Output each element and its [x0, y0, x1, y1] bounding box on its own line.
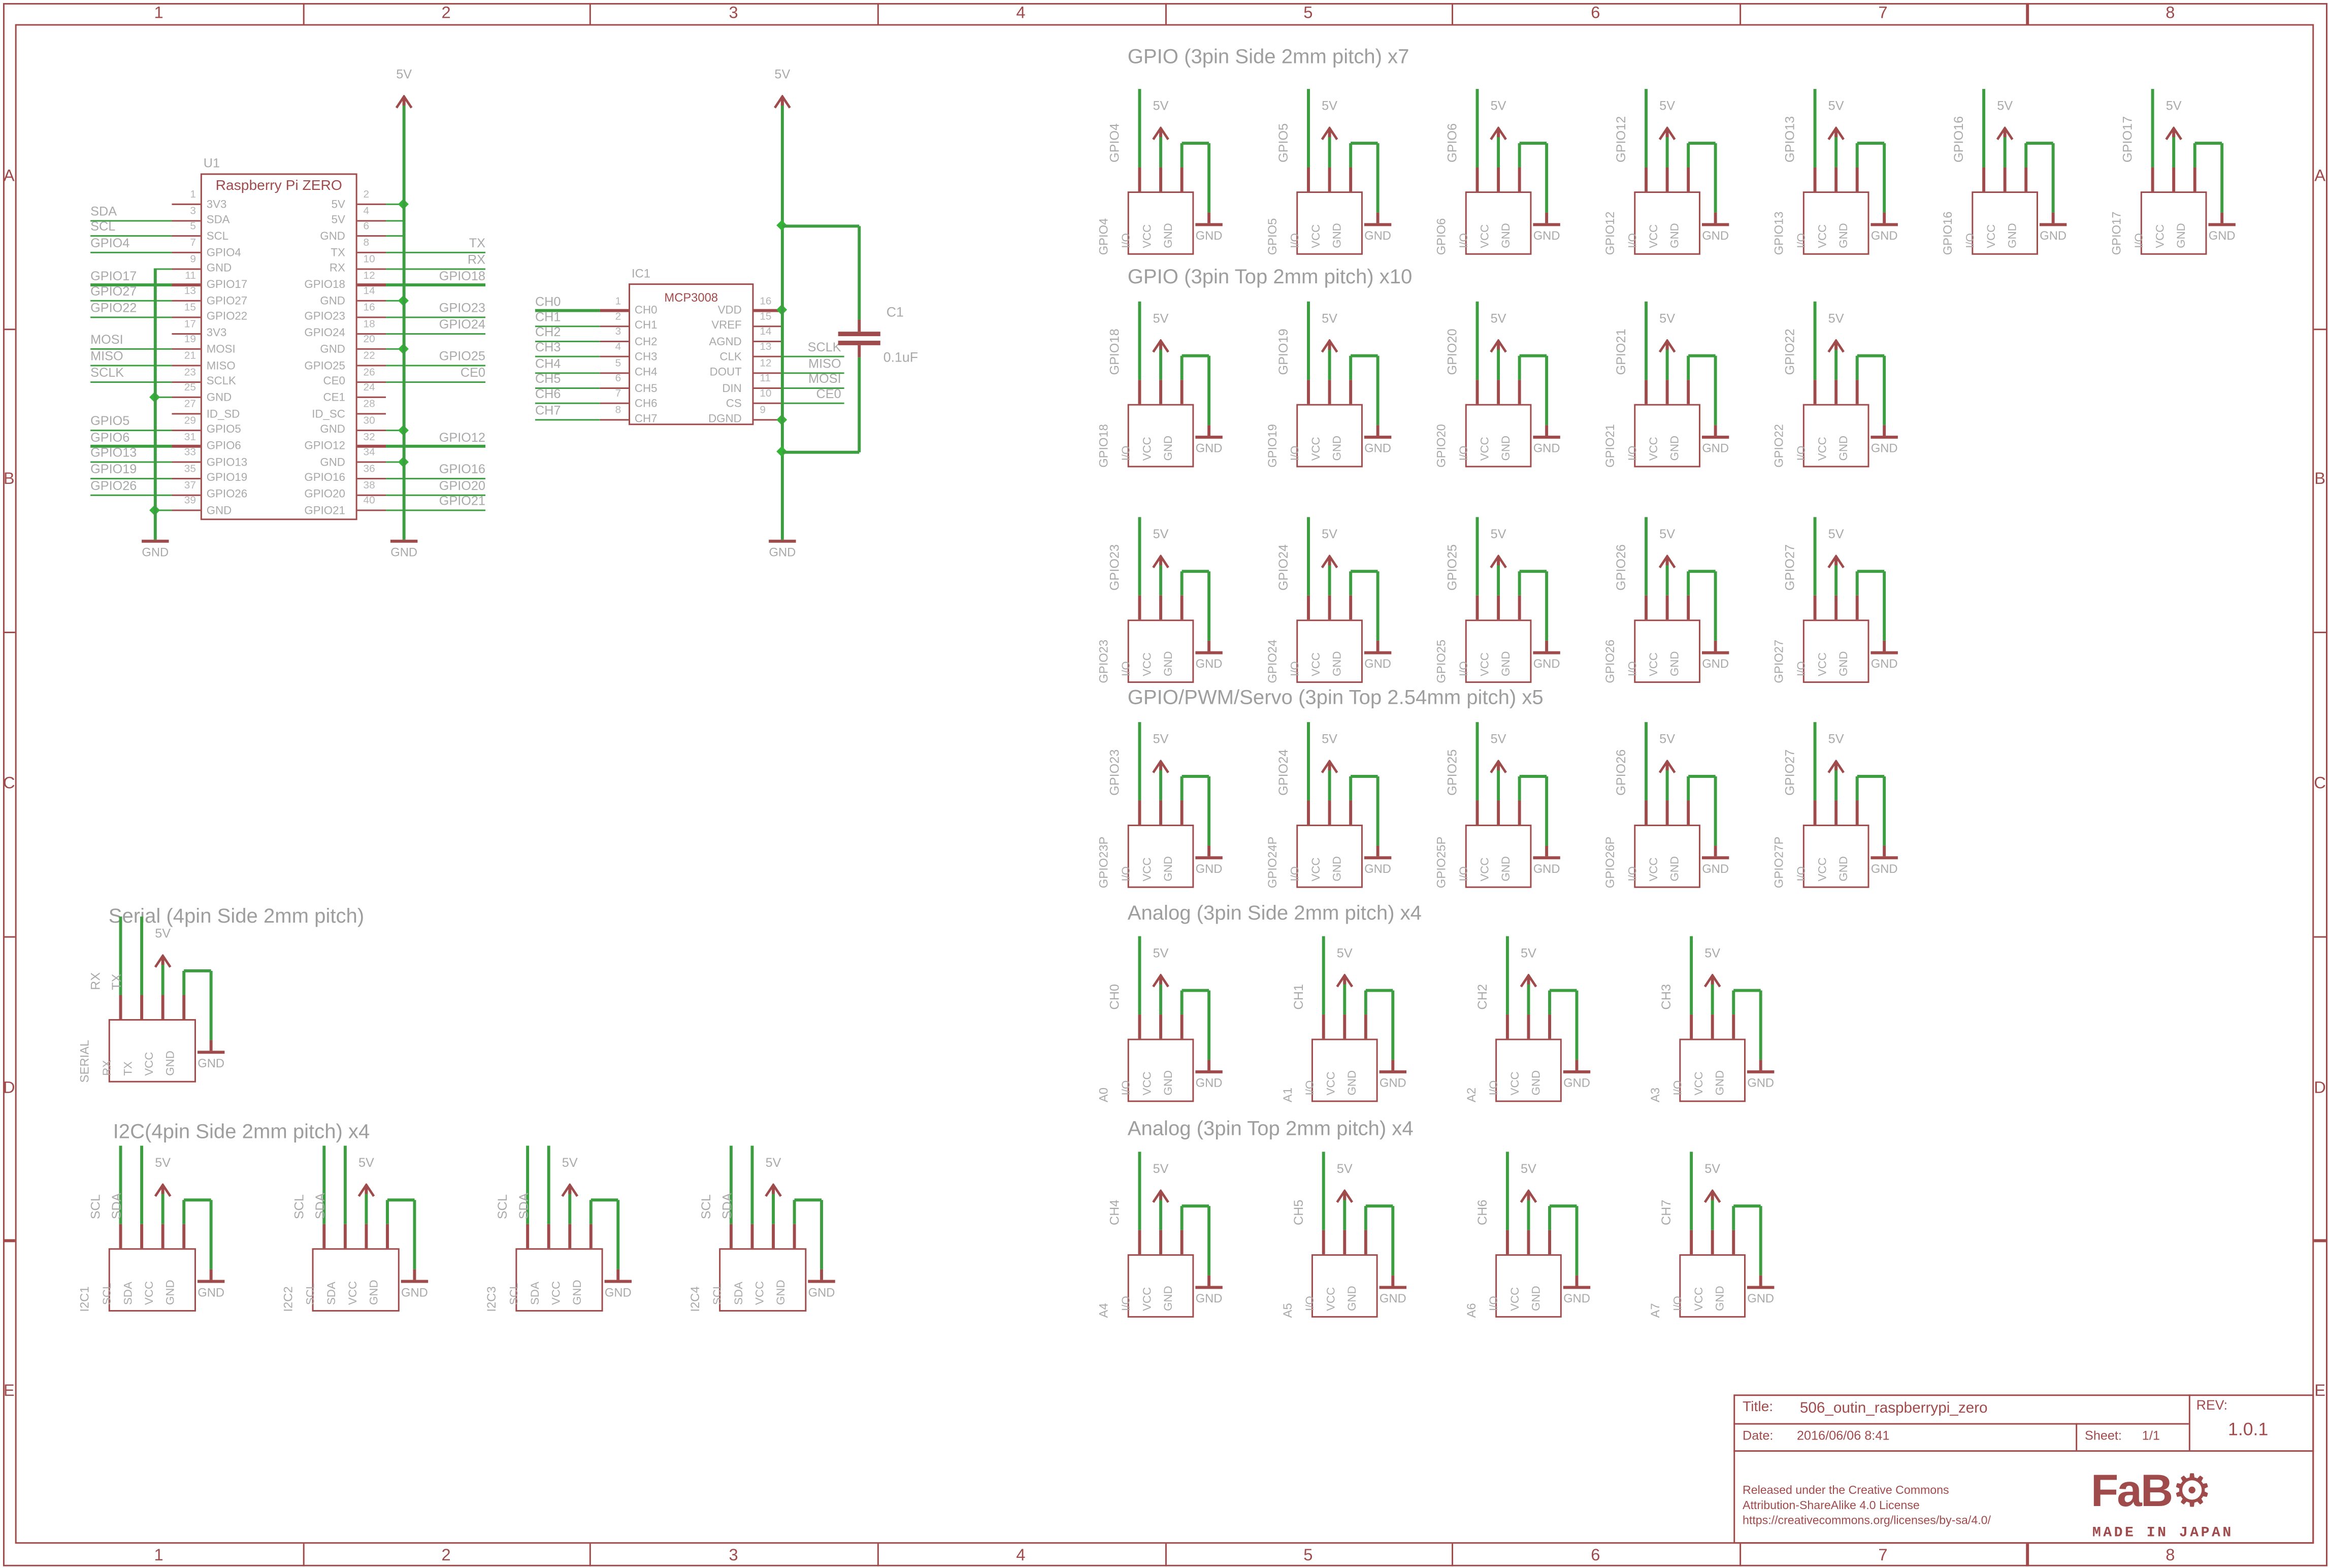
- v5-arrow-stem: [162, 956, 164, 965]
- gnd-bar-icon: [1195, 1286, 1222, 1289]
- connector-gpio26p-pin-stub: [1687, 800, 1689, 825]
- ic1-pin-name: CLK: [650, 351, 742, 364]
- v5-label: 5V: [1480, 733, 1516, 747]
- ic1-pin-number: 14: [760, 328, 771, 340]
- v5-label: 5V: [1142, 946, 1178, 961]
- u1-pin-stub: [357, 397, 386, 399]
- connector-a4-pin-stub: [1139, 1230, 1141, 1255]
- connector-gpio22-pin-stub: [1835, 380, 1837, 404]
- date-value: 2016/06/06 8:41: [1797, 1429, 1889, 1444]
- gnd-wire: [1350, 143, 1352, 168]
- gnd-bar-icon: [1871, 223, 1897, 226]
- gnd-lead: [1377, 846, 1379, 857]
- connector-a3-pin-label: I/O: [1672, 1080, 1686, 1095]
- v5-arrow-stem: [2173, 128, 2175, 137]
- ic1-pin-number: 16: [760, 296, 771, 308]
- connector-gpio17-name: GPIO17: [2110, 211, 2124, 255]
- u1-pin-number: 20: [364, 335, 375, 347]
- net-wire: [1645, 302, 1647, 380]
- u1-pin-name: GND: [227, 456, 345, 470]
- connector-serial-pin-stub: [183, 995, 185, 1019]
- gnd-bus-wire: [154, 269, 156, 539]
- gnd-lead: [1546, 641, 1548, 651]
- frame-tick: [1740, 1544, 1742, 1565]
- v5-label: 5V: [1142, 1162, 1178, 1177]
- license-line: Released under the Creative Commons: [1743, 1485, 1949, 1497]
- gnd-bar-icon: [1380, 1070, 1406, 1074]
- net-label: GPIO20: [1446, 328, 1461, 374]
- u1-pin-name: GND: [227, 295, 345, 308]
- u1-pin-number: 8: [364, 238, 370, 250]
- gnd-bar-icon: [1533, 651, 1560, 655]
- u1-pin-number: 21: [151, 351, 196, 364]
- net-label: GPIO24: [1277, 543, 1292, 590]
- gnd-bar-icon: [1533, 223, 1560, 226]
- u1-pin-number: 40: [364, 497, 375, 509]
- connector-gpio27p-pin-stub: [1856, 800, 1858, 825]
- connector-i2c1-pin-stub: [141, 1224, 143, 1249]
- connector-gpio26p-pin-label: GND: [1669, 856, 1683, 880]
- net-label: TX: [383, 237, 485, 251]
- connector-gpio24p-pin-label: I/O: [1290, 865, 1303, 880]
- v5-arrow-stem: [1343, 975, 1346, 985]
- net-label: CH0: [535, 295, 561, 309]
- connector-a1-name: A1: [1281, 1088, 1295, 1102]
- gnd-lead: [617, 1269, 619, 1280]
- ic1-pin-name: DOUT: [650, 367, 742, 380]
- connector-gpio24-pin-label: GND: [1332, 650, 1345, 675]
- frame-tick: [2314, 632, 2326, 634]
- frame-tick: [303, 2, 305, 24]
- c1-lead: [858, 345, 860, 357]
- connector-gpio24p-body: [1296, 825, 1363, 888]
- title-block-divider: [2076, 1423, 2078, 1450]
- net-label: RX: [383, 253, 485, 268]
- connector-i2c2-pin-stub: [386, 1224, 388, 1249]
- u1-pin-number: 24: [364, 383, 375, 396]
- connector-i2c2-pin-label: GND: [369, 1279, 382, 1304]
- connector-gpio6-pin-stub: [1477, 168, 1479, 192]
- connector-gpio23p-pin-stub: [1139, 800, 1141, 825]
- net-wire: [1983, 89, 1985, 167]
- ic1-pin-number: 1: [579, 296, 621, 308]
- connector-gpio20-pin-stub: [1477, 380, 1479, 404]
- net-wire: [1814, 517, 1816, 595]
- connector-i2c2-pin-label: SCL: [305, 1282, 318, 1304]
- connector-gpio25p-pin-label: VCC: [1480, 857, 1493, 880]
- connector-gpio12-pin-label: GND: [1669, 222, 1683, 247]
- gnd-wire: [414, 1200, 416, 1269]
- v5-label: 5V: [145, 927, 181, 942]
- net-label: GPIO19: [1277, 328, 1292, 374]
- connector-gpio27p-pin-label: I/O: [1796, 865, 1809, 880]
- v5-label: 5V: [1511, 1162, 1547, 1177]
- frame-column-number: 4: [998, 5, 1043, 24]
- gnd-wire: [1520, 142, 1547, 144]
- u1-pin-name: SCL: [207, 231, 228, 244]
- net-label: GPIO13: [1784, 115, 1798, 161]
- u1-pin-name: RX: [227, 263, 345, 276]
- made-in-japan-label: MADE IN JAPAN: [2092, 1524, 2234, 1541]
- connector-a6-pin-label: GND: [1531, 1285, 1544, 1310]
- connector-serial-pin-stub: [141, 995, 143, 1019]
- gnd-bar-icon: [1195, 436, 1222, 439]
- power-bus-wire: [781, 103, 783, 540]
- gnd-wire: [1208, 143, 1210, 213]
- connector-a4-pin-stub: [1181, 1230, 1183, 1255]
- connector-gpio25-body: [1465, 619, 1532, 683]
- net-label: RX: [89, 971, 104, 989]
- gnd-lead: [1546, 846, 1548, 857]
- frame-column-number: 2: [423, 5, 469, 24]
- v5-label: 5V: [1818, 312, 1854, 327]
- connector-gpio27p-pin-stub: [1814, 800, 1816, 825]
- u1-pin-number: 15: [151, 303, 196, 315]
- u1-pin-name: GPIO21: [227, 505, 345, 518]
- u1-pin-stub: [357, 462, 386, 464]
- connector-gpio23p-pin-stub: [1181, 800, 1183, 825]
- frame-column-number: 3: [711, 5, 756, 24]
- frame-tick: [2314, 1240, 2326, 1242]
- gnd-wire: [1351, 775, 1377, 777]
- ic1-pin-stub: [753, 403, 782, 405]
- net-label: CH7: [535, 403, 561, 418]
- gnd-bar-icon: [1702, 436, 1729, 439]
- u1-pin-stub: [172, 462, 200, 464]
- ic1-pin-name: VDD: [650, 305, 742, 318]
- net-wire: [1139, 936, 1141, 1015]
- frame-row-letter: C: [0, 775, 31, 794]
- connector-gpio23-pin-label: GND: [1163, 650, 1176, 675]
- gnd-lead: [1208, 641, 1210, 651]
- net-wire: [1139, 517, 1141, 595]
- gnd-bar-icon: [1871, 651, 1897, 655]
- net-wire: [386, 219, 404, 221]
- connector-gpio16-pin-stub: [2025, 168, 2027, 192]
- connector-a5-pin-label: VCC: [1326, 1286, 1339, 1310]
- connector-a0-pin-stub: [1160, 1015, 1162, 1039]
- connector-a2-pin-stub: [1549, 1015, 1551, 1039]
- net-wire: [1506, 1152, 1508, 1230]
- v5-arrow-stem: [1328, 341, 1330, 350]
- connector-gpio24p-name: GPIO24P: [1266, 837, 1280, 889]
- c1-lead: [858, 319, 860, 332]
- gnd-wire: [795, 1199, 822, 1201]
- connector-a0-body: [1128, 1039, 1194, 1102]
- connector-gpio24-body: [1296, 619, 1363, 683]
- u1-pin-stub: [172, 429, 200, 431]
- gnd-wire: [1549, 991, 1551, 1015]
- gnd-label: GND: [380, 545, 428, 559]
- v5-label: 5V: [1694, 946, 1730, 961]
- v5-label: 5V: [1818, 100, 1854, 114]
- gnd-wire: [1350, 356, 1352, 380]
- connector-gpio17-pin-label: GND: [2176, 222, 2189, 247]
- net-label: GPIO12: [1615, 115, 1629, 161]
- v5-label: 5V: [1649, 528, 1685, 542]
- v5-arrow-stem: [772, 1185, 774, 1194]
- connector-gpio23-pin-stub: [1139, 596, 1141, 620]
- connector-gpio25p-pin-stub: [1497, 800, 1499, 825]
- net-label: SCL: [293, 1194, 308, 1219]
- gnd-wire: [1688, 355, 1715, 357]
- u1-pin-stub: [357, 252, 386, 254]
- frame-tick: [877, 1544, 879, 1565]
- net-wire: [1477, 89, 1479, 167]
- gnd-wire: [1181, 1206, 1183, 1230]
- connector-i2c4-pin-stub: [772, 1224, 774, 1249]
- frame-tick: [2, 1240, 15, 1242]
- gnd-wire: [1550, 990, 1577, 992]
- connector-gpio27-pin-label: VCC: [1817, 651, 1830, 675]
- ic1-pin-name: DGND: [650, 413, 742, 427]
- connector-gpio27p-name: GPIO27P: [1773, 837, 1786, 889]
- connector-gpio21-pin-label: GND: [1669, 435, 1683, 460]
- gnd-wire: [1857, 142, 1884, 144]
- connector-gpio23-pin-stub: [1181, 596, 1183, 620]
- gnd-wire: [590, 1200, 592, 1224]
- frame-row-letter: E: [0, 1383, 31, 1402]
- gnd-bar-icon: [1563, 1070, 1590, 1074]
- gnd-wire: [1365, 1206, 1367, 1230]
- connector-gpio24-pin-label: VCC: [1310, 651, 1324, 675]
- v5-label: 5V: [1480, 528, 1516, 542]
- gnd-lead: [2221, 213, 2223, 223]
- frame-row-letter: B: [2298, 471, 2329, 490]
- gnd-wire: [1377, 571, 1379, 641]
- connector-gpio20-pin-label: GND: [1500, 435, 1514, 460]
- connector-gpio23p-name: GPIO23P: [1097, 837, 1111, 889]
- gnd-bar-icon: [1702, 223, 1729, 226]
- net-wire: [1139, 1152, 1141, 1230]
- connector-a1-pin-stub: [1343, 1015, 1346, 1039]
- connector-gpio17-pin-label: I/O: [2134, 233, 2147, 248]
- net-wire: [1307, 302, 1309, 380]
- u1-pin-number: 33: [151, 448, 196, 460]
- u1-pin-name: GPIO16: [227, 472, 345, 485]
- u1-pin-name: 3V3: [207, 328, 227, 341]
- frame-column-number: 1: [136, 1547, 181, 1566]
- net-label: CH2: [1476, 983, 1491, 1009]
- frame-row-letter: D: [2298, 1079, 2329, 1098]
- net-wire: [386, 333, 485, 335]
- frame-row-letter: D: [0, 1079, 31, 1098]
- v5-arrow-stem: [1712, 1191, 1714, 1200]
- u1-pin-name: GPIO20: [227, 488, 345, 502]
- connector-i2c1-pin-stub: [162, 1224, 164, 1249]
- frame-row-letter: B: [0, 471, 31, 490]
- connector-gpio27-name: GPIO27: [1773, 640, 1786, 683]
- net-wire: [1323, 1152, 1325, 1230]
- gnd-wire: [1377, 143, 1379, 213]
- v5-label: 5V: [755, 1156, 791, 1171]
- connector-gpio19-pin-stub: [1307, 380, 1309, 404]
- gnd-wire: [1377, 776, 1379, 846]
- u1-pin-number: 11: [151, 271, 196, 283]
- v5-label: 5V: [1142, 528, 1178, 542]
- ic1-pin-name: AGND: [650, 336, 742, 349]
- v5-label: 5V: [1480, 100, 1516, 114]
- gnd-lead: [1392, 1060, 1394, 1070]
- frame-tick: [1452, 2, 1454, 24]
- connector-i2c2-pin-stub: [323, 1224, 325, 1249]
- connector-gpio22-pin-label: VCC: [1817, 436, 1830, 460]
- connector-gpio24-pin-stub: [1307, 596, 1309, 620]
- connector-gpio13-pin-stub: [1814, 168, 1816, 192]
- connector-gpio23p-pin-stub: [1160, 800, 1162, 825]
- frame-column-number: 8: [2148, 1547, 2193, 1566]
- connector-a6-name: A6: [1465, 1303, 1479, 1318]
- net-label: CH3: [535, 341, 561, 356]
- gnd-wire: [1760, 1206, 1762, 1276]
- connector-i2c3-pin-stub: [569, 1224, 571, 1249]
- net-wire: [1814, 89, 1816, 167]
- section-title: GPIO (3pin Side 2mm pitch) x7: [1128, 45, 1409, 69]
- gnd-wire: [2025, 143, 2027, 168]
- frame-row-letter: A: [0, 167, 31, 186]
- net-label: GPIO22: [1784, 328, 1798, 374]
- connector-gpio18-pin-stub: [1139, 380, 1141, 404]
- net-wire: [1645, 722, 1647, 800]
- u1-pin-number: 31: [151, 432, 196, 444]
- net-label: GPIO19: [90, 463, 137, 477]
- gnd-wire: [1351, 570, 1377, 572]
- connector-a5-pin-stub: [1365, 1230, 1367, 1255]
- gnd-lead: [1208, 846, 1210, 857]
- gnd-wire: [1182, 570, 1209, 572]
- connector-a6-pin-stub: [1528, 1230, 1530, 1255]
- rev-value: 1.0.1: [2228, 1420, 2268, 1440]
- net-label: SDA: [517, 1192, 532, 1219]
- gnd-wire: [1520, 775, 1547, 777]
- gnd-wire: [1182, 990, 1209, 992]
- gnd-wire: [1351, 355, 1377, 357]
- net-label: SDA: [90, 205, 117, 219]
- gnd-bar-icon: [1533, 856, 1560, 860]
- net-label: GPIO6: [1446, 122, 1461, 161]
- gnd-wire: [1688, 142, 1715, 144]
- net-label: GPIO25: [1446, 748, 1461, 795]
- frame-column-number: 1: [136, 5, 181, 24]
- connector-gpio26p-body: [1634, 825, 1700, 888]
- connector-i2c3-pin-stub: [548, 1224, 550, 1249]
- gnd-wire: [1351, 142, 1377, 144]
- u1-pin-number: 34: [364, 448, 375, 460]
- net-wire: [2152, 89, 2154, 167]
- connector-gpio17-pin-stub: [2173, 168, 2175, 192]
- gnd-bar-icon: [1195, 856, 1222, 860]
- frame-tick: [2026, 1544, 2028, 1565]
- ic1-pin-number: 8: [579, 405, 621, 417]
- connector-gpio12-pin-stub: [1687, 168, 1689, 192]
- connector-a3-body: [1679, 1039, 1746, 1102]
- connector-gpio25p-name: GPIO25P: [1435, 837, 1449, 889]
- v5-arrow-stem: [365, 1185, 367, 1194]
- date-label: Date:: [1743, 1429, 1773, 1444]
- gnd-lead: [1392, 1276, 1394, 1286]
- u1-pin-number: 12: [364, 271, 375, 283]
- title-value: 506_outin_raspberrypi_zero: [1800, 1400, 1988, 1417]
- frame-column-number: 2: [423, 1547, 469, 1566]
- connector-gpio25p-pin-label: GND: [1500, 856, 1514, 880]
- gnd-wire: [1392, 991, 1394, 1060]
- net-wire: [1307, 89, 1309, 167]
- u1-pin-number: 39: [151, 497, 196, 509]
- connector-gpio26p-pin-label: VCC: [1648, 857, 1661, 880]
- connector-gpio20-pin-label: VCC: [1480, 436, 1493, 460]
- connector-serial-pin-label: GND: [165, 1050, 178, 1075]
- u1-pin-stub: [357, 478, 386, 480]
- gnd-lead: [1576, 1276, 1578, 1286]
- net-label: GPIO23: [1108, 748, 1123, 795]
- net-wire: [141, 1146, 143, 1224]
- net-label: GPIO6: [90, 431, 129, 445]
- frame-column-number: 8: [2148, 5, 2193, 24]
- connector-gpio5-pin-stub: [1329, 168, 1331, 192]
- frame-tick: [2, 632, 15, 634]
- connector-gpio20-name: GPIO20: [1435, 424, 1449, 468]
- connector-a2-body: [1495, 1039, 1562, 1102]
- u1-pin-number: 23: [151, 367, 196, 379]
- connector-gpio24-pin-stub: [1350, 596, 1352, 620]
- connector-a7-pin-stub: [1690, 1230, 1692, 1255]
- gnd-lead: [210, 1040, 212, 1051]
- connector-gpio24p-pin-label: GND: [1332, 856, 1345, 880]
- connector-i2c1-pin-stub: [183, 1224, 185, 1249]
- gnd-bar-icon: [1195, 223, 1222, 226]
- gnd-wire: [183, 1200, 185, 1224]
- connector-a6-pin-stub: [1549, 1230, 1551, 1255]
- frame-tick: [2314, 328, 2326, 330]
- gnd-bar-icon: [401, 1280, 428, 1284]
- gnd-bar-icon: [198, 1280, 224, 1284]
- u1-pin-name: SDA: [207, 214, 230, 227]
- net-label: GPIO24: [1277, 748, 1292, 795]
- gnd-wire: [387, 1199, 414, 1201]
- gnd-wire: [1181, 991, 1183, 1015]
- net-label: CH6: [535, 388, 561, 403]
- connector-gpio5-pin-label: I/O: [1290, 233, 1303, 248]
- gnd-label: GND: [758, 545, 806, 559]
- connector-gpio21-name: GPIO21: [1603, 424, 1617, 468]
- u1-pin-number: 10: [364, 254, 375, 267]
- v5-arrow-stem: [1160, 341, 1162, 350]
- connector-gpio18-body: [1128, 404, 1194, 468]
- net-label: GPIO24: [383, 317, 485, 332]
- ic1-pin-stub: [600, 403, 629, 405]
- gnd-lead: [1208, 1276, 1210, 1286]
- gnd-wire: [386, 1200, 388, 1224]
- net-label: GPIO21: [1615, 328, 1629, 374]
- v5-arrow-stem: [1328, 761, 1330, 770]
- net-wire: [1645, 89, 1647, 167]
- connector-gpio25p-pin-label: I/O: [1458, 865, 1471, 880]
- net-wire: [1814, 302, 1816, 380]
- gnd-wire: [1366, 990, 1393, 992]
- gnd-wire: [1857, 355, 1884, 357]
- net-label: SCLK: [766, 341, 841, 356]
- connector-gpio20-pin-stub: [1519, 380, 1521, 404]
- fabo-logo-text: FaB: [2091, 1467, 2172, 1517]
- gnd-bar-icon: [390, 540, 417, 543]
- net-label: GPIO21: [383, 495, 485, 510]
- connector-gpio22-pin-stub: [1814, 380, 1816, 404]
- connector-gpio25-pin-stub: [1477, 596, 1479, 620]
- gnd-wire: [210, 971, 212, 1040]
- connector-i2c2-pin-stub: [344, 1224, 346, 1249]
- gnd-bar-icon: [2040, 223, 2066, 226]
- connector-i2c3-pin-stub: [590, 1224, 592, 1249]
